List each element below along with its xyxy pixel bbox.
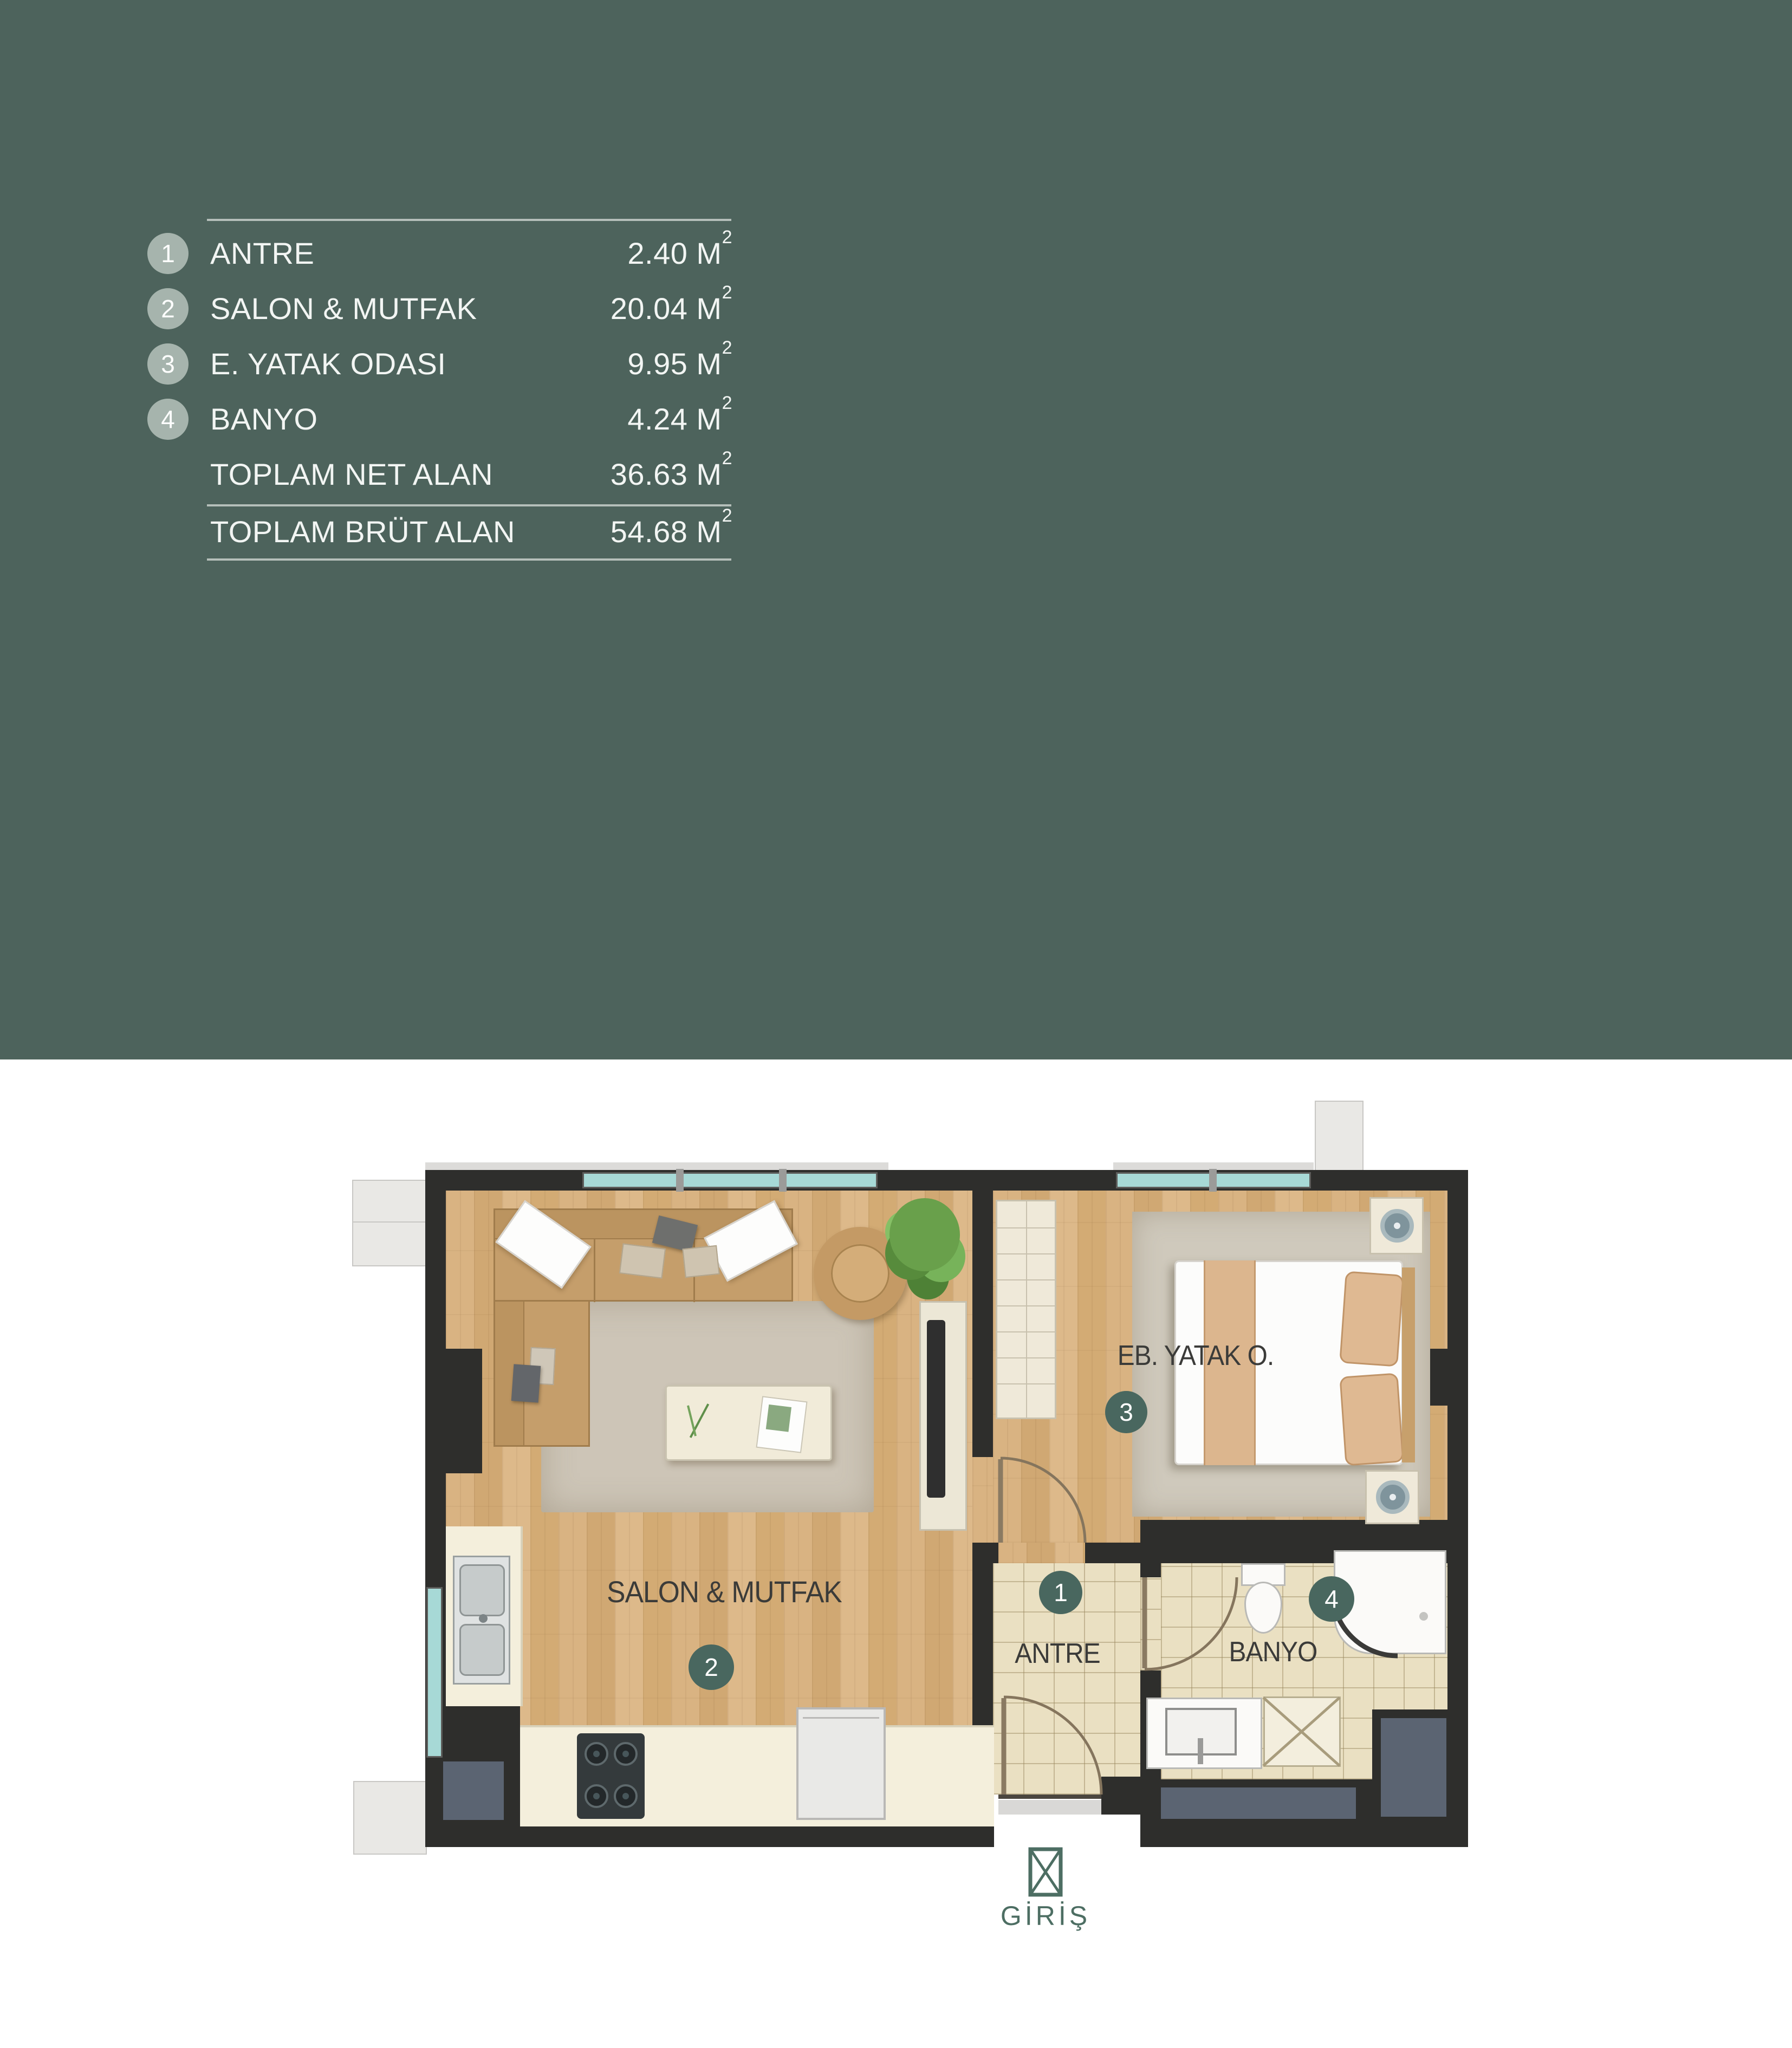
plan-badge-salon: 2 [689,1644,734,1690]
exterior-slab-bottom-left [353,1781,427,1855]
exterior-slab-top-left [352,1180,427,1266]
room-name: SALON & MUTFAK [210,291,477,326]
page: { "legend": { "rows": [ {"num": "1", "la… [0,0,1792,2048]
plan-badge-antre: 1 [1039,1571,1082,1614]
entrance-door-arc [1004,1697,1101,1795]
legend-total-brut-row: TOPLAM BRÜT ALAN 54.68 M2 [207,515,732,549]
legend-row: E. YATAK ODASI 9.95 M2 [207,347,732,381]
salon-label: SALON & MUTFAK [550,1574,899,1609]
room-name: ANTRE [210,236,314,271]
total-net-area: 36.63 M2 [440,457,732,492]
antre-label: ANTRE [983,1637,1132,1670]
legend-badge-4: 4 [147,399,189,440]
plan-badge-bedroom: 3 [1105,1391,1147,1433]
legend-badge-3: 3 [147,343,189,385]
entrance-label: GİRİŞ [964,1900,1127,1932]
legend-line-middle [207,504,731,506]
banyo-label: BANYO [1198,1636,1348,1668]
legend-row: SALON & MUTFAK 20.04 M2 [207,291,732,326]
room-area: 2.40 M2 [440,236,732,271]
bedroom-label: EB. YATAK O. [1071,1340,1320,1372]
legend-total-net-row: TOPLAM NET ALAN 36.63 M2 [207,457,732,492]
room-name: E. YATAK ODASI [210,347,446,381]
room-name: BANYO [210,402,318,437]
legend-panel: ANTRE 2.40 M2 1 SALON & MUTFAK 20.04 M2 … [0,0,1792,1059]
legend-badge-2: 2 [147,288,189,329]
exterior-ledge-left [425,1162,888,1170]
plan-badge-banyo: 4 [1309,1576,1354,1622]
total-brut-area: 54.68 M2 [440,515,732,549]
room-area: 20.04 M2 [440,291,732,326]
slab-divider [353,1221,426,1223]
bedroom-door-arc [1001,1458,1085,1543]
legend-row: ANTRE 2.40 M2 [207,236,732,271]
legend-badge-1: 1 [147,233,189,274]
room-area: 9.95 M2 [440,347,732,381]
washer-space-cross [1263,1698,1340,1766]
room-area: 4.24 M2 [440,402,732,437]
legend-line-top [207,219,731,221]
legend-line-bottom [207,558,731,561]
legend-row: BANYO 4.24 M2 [207,402,732,437]
plan-linework-overlay [425,1170,1468,1928]
entrance-icon [1028,1847,1063,1897]
